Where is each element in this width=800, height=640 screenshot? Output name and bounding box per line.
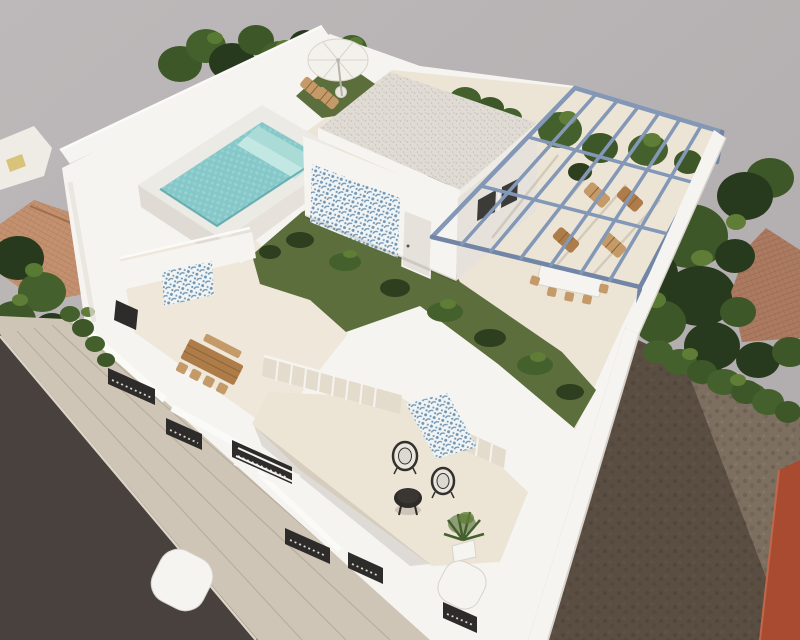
render-canvas: [0, 0, 800, 640]
round-coffee-table: [394, 488, 422, 515]
wire-chair: [393, 442, 417, 474]
villa-3d-render: [0, 0, 800, 640]
